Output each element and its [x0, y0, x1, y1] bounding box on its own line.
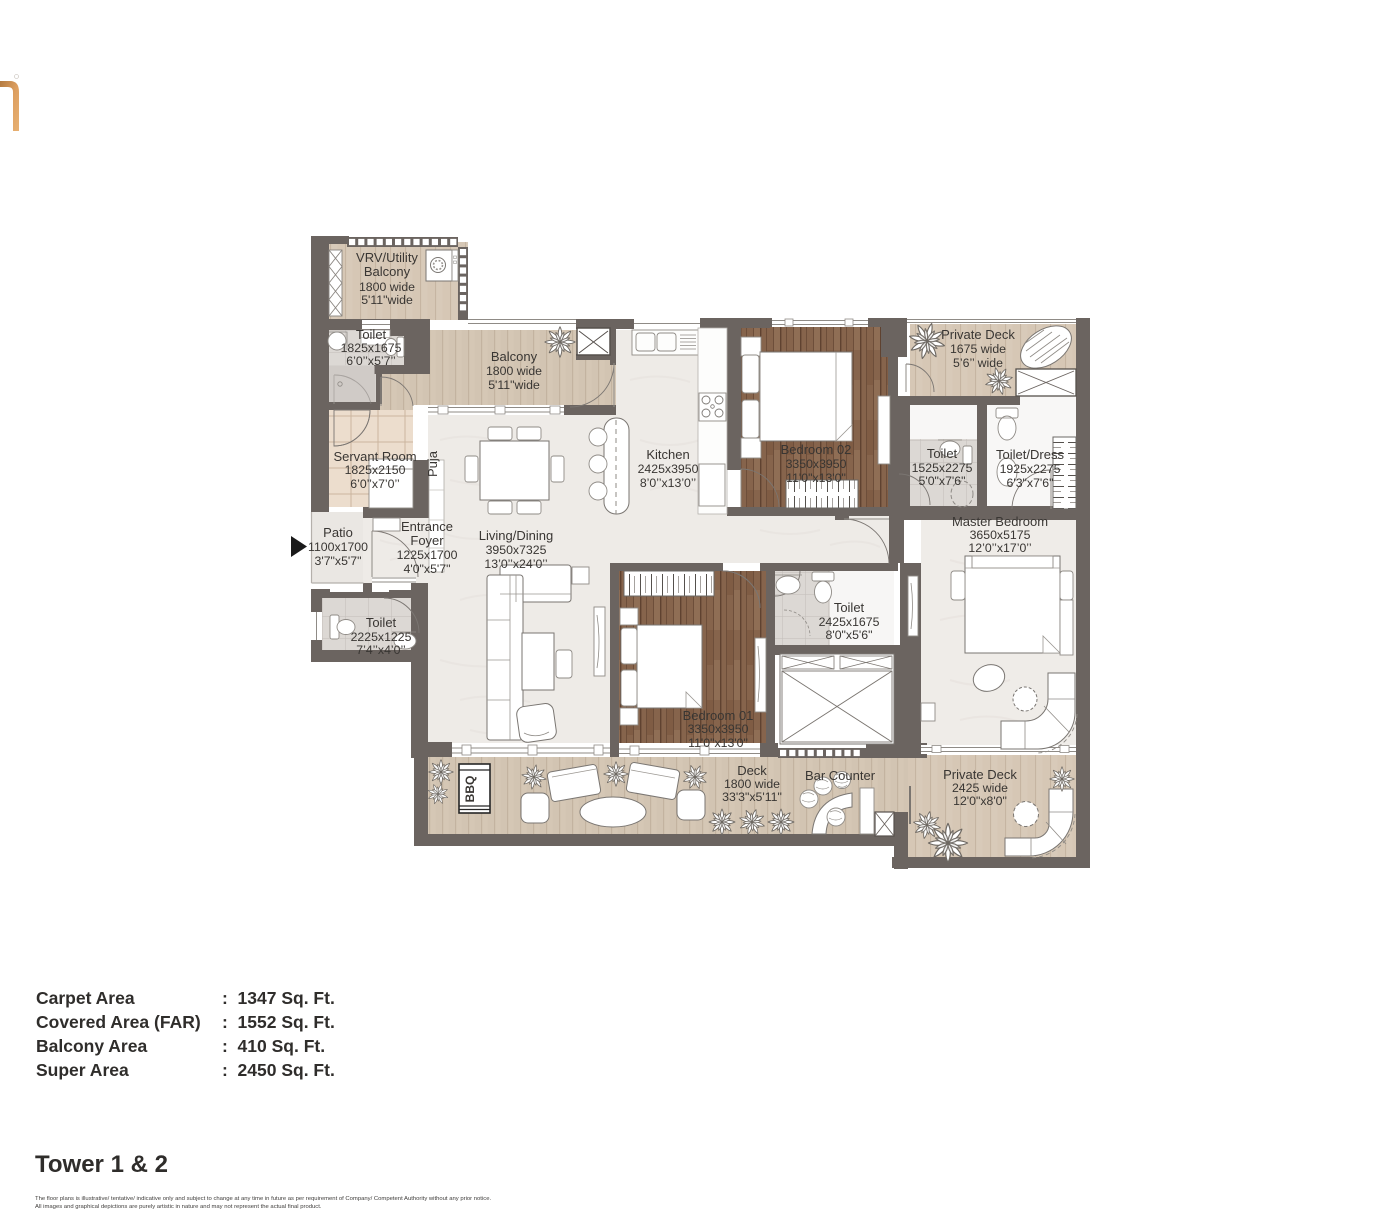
svg-text:Toilet/Dress: Toilet/Dress	[996, 447, 1064, 462]
svg-text:4'0"x5'7": 4'0"x5'7"	[404, 562, 451, 576]
svg-text:Bedroom 02: Bedroom 02	[781, 442, 852, 457]
svg-text:VRV/Utility: VRV/Utility	[356, 250, 418, 265]
svg-text:33'3"x5'11": 33'3"x5'11"	[722, 790, 782, 804]
svg-text:Private Deck: Private Deck	[941, 327, 1015, 342]
svg-text:Living/Dining: Living/Dining	[479, 528, 553, 543]
svg-text:5'0"x7'6": 5'0"x7'6"	[919, 474, 966, 488]
svg-text:12’0’’x17’0’’: 12’0’’x17’0’’	[968, 541, 1031, 555]
svg-text:Foyer: Foyer	[410, 533, 444, 548]
svg-text:Master Bedroom: Master Bedroom	[952, 514, 1048, 529]
svg-text:Toilet: Toilet	[356, 327, 387, 342]
svg-text:3350x3950: 3350x3950	[786, 457, 847, 471]
svg-text:5'11"wide: 5'11"wide	[488, 378, 540, 392]
svg-text:12'0"x8'0": 12'0"x8'0"	[953, 794, 1007, 808]
svg-text:Entrance: Entrance	[401, 519, 453, 534]
svg-text:11'0"x13'0": 11'0"x13'0"	[786, 471, 846, 485]
svg-text:8'0"x5'6": 8'0"x5'6"	[826, 628, 873, 642]
svg-text:2425 wide: 2425 wide	[952, 781, 1008, 795]
svg-text:Private Deck: Private Deck	[943, 767, 1017, 782]
svg-text:3950x7325: 3950x7325	[486, 543, 547, 557]
svg-text:1825x1675: 1825x1675	[341, 341, 402, 355]
svg-text:2425x1675: 2425x1675	[819, 615, 880, 629]
svg-text:6’0’’x7’0’’: 6’0’’x7’0’’	[350, 477, 399, 491]
svg-text:3350x3950: 3350x3950	[688, 722, 749, 736]
svg-text:11'0"x13'0": 11'0"x13'0"	[688, 736, 748, 750]
svg-text:1525x2275: 1525x2275	[912, 461, 973, 475]
svg-text:Balcony: Balcony	[491, 349, 538, 364]
svg-text:5'11"wide: 5'11"wide	[361, 293, 413, 307]
svg-text:7’4’’x4’0’’: 7’4’’x4’0’’	[356, 643, 405, 657]
svg-text:1800 wide: 1800 wide	[359, 280, 415, 294]
svg-text:2425x3950: 2425x3950	[638, 462, 699, 476]
svg-text:3'7"x5'7": 3'7"x5'7"	[315, 554, 362, 568]
svg-text:1800 wide: 1800 wide	[486, 364, 542, 378]
svg-text:Puja: Puja	[425, 450, 440, 477]
svg-text:Deck: Deck	[737, 763, 767, 778]
svg-text:13’0’’x24’0’’: 13’0’’x24’0’’	[484, 557, 547, 571]
svg-text:Toilet: Toilet	[366, 615, 397, 630]
svg-text:3650x5175: 3650x5175	[970, 528, 1031, 542]
svg-text:2225x1225: 2225x1225	[351, 630, 412, 644]
svg-text:6’0’’x5’7’’: 6’0’’x5’7’’	[346, 354, 395, 368]
svg-text:1675 wide: 1675 wide	[950, 342, 1006, 356]
svg-text:1225x1700: 1225x1700	[397, 548, 458, 562]
svg-text:Servant Room: Servant Room	[333, 449, 416, 464]
svg-text:1825x2150: 1825x2150	[345, 463, 406, 477]
svg-text:Bar Counter: Bar Counter	[805, 768, 876, 783]
svg-text:Kitchen: Kitchen	[646, 447, 689, 462]
svg-text:Bedroom 01: Bedroom 01	[683, 708, 754, 723]
svg-text:Toilet: Toilet	[834, 600, 865, 615]
svg-text:1925x2275: 1925x2275	[1000, 462, 1061, 476]
svg-text:1100x1700: 1100x1700	[308, 540, 368, 554]
svg-text:1800 wide: 1800 wide	[724, 777, 780, 791]
svg-text:8’0’’x13’0’’: 8’0’’x13’0’’	[640, 476, 696, 490]
svg-text:Balcony: Balcony	[364, 264, 411, 279]
svg-text:Toilet: Toilet	[927, 446, 958, 461]
svg-text:BBQ: BBQ	[463, 776, 477, 803]
svg-text:5’6’’ wide: 5’6’’ wide	[953, 356, 1003, 370]
svg-text:Patio: Patio	[323, 525, 353, 540]
svg-text:6'3"x7'6": 6'3"x7'6"	[1007, 476, 1054, 490]
